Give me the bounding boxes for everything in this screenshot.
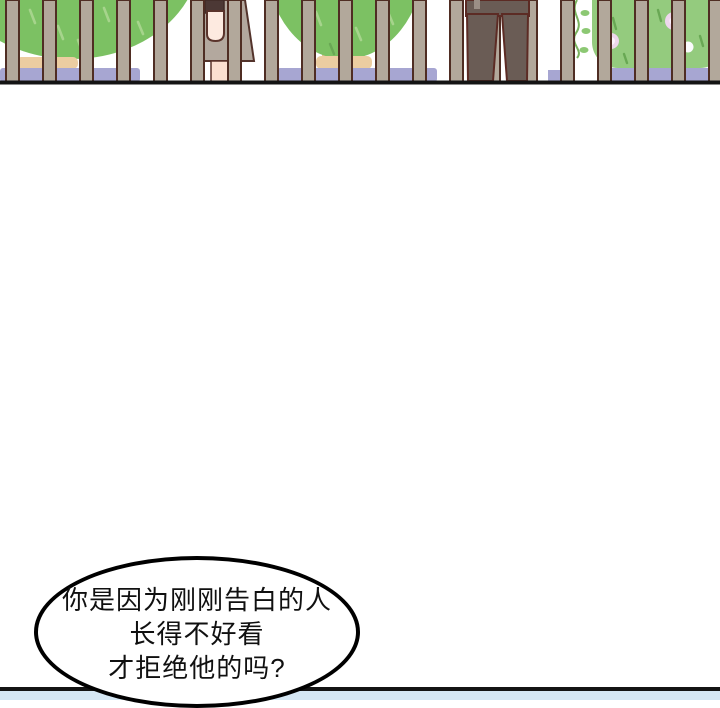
fence-bar: [302, 0, 315, 82]
fence-bar: [154, 0, 167, 82]
fence-bar: [265, 0, 278, 82]
fence-bar: [6, 0, 19, 82]
fence-bar: [43, 0, 56, 82]
comic-page: 你是因为刚刚告白的人 长得不好看 才拒绝他的吗?: [0, 0, 720, 700]
vine-leaf: [581, 10, 590, 16]
girl-hand: [207, 11, 224, 41]
fence-bar: [191, 0, 204, 82]
courtyard-panel: [0, 0, 720, 86]
fence-bar: [339, 0, 352, 82]
fence-bar: [228, 0, 241, 82]
fence-bar: [672, 0, 685, 82]
fence-bar: [413, 0, 426, 82]
vine-leaf: [582, 28, 591, 34]
fence-bar: [598, 0, 611, 82]
fence-bar: [80, 0, 93, 82]
fence-bar: [709, 0, 720, 82]
ground-purple-right: [606, 68, 720, 82]
fence-bar: [376, 0, 389, 82]
fence-bar: [561, 0, 574, 82]
left-tree: [0, 0, 200, 59]
man-trouser-right: [502, 14, 528, 81]
fence-bar: [635, 0, 648, 82]
fence-bar: [450, 0, 463, 82]
man-trouser-left: [467, 14, 498, 81]
fence-baseline: [0, 81, 720, 85]
man-coat-slit: [474, 0, 480, 9]
speech-line-1: 你是因为刚刚告白的人: [30, 583, 364, 617]
speech-line-3: 才拒绝他的吗?: [30, 651, 364, 685]
speech-line-2: 长得不好看: [30, 617, 364, 651]
fence-bar: [117, 0, 130, 82]
vine-leaf: [580, 47, 589, 53]
speech-bubble-text: 你是因为刚刚告白的人 长得不好看 才拒绝他的吗?: [30, 583, 364, 685]
